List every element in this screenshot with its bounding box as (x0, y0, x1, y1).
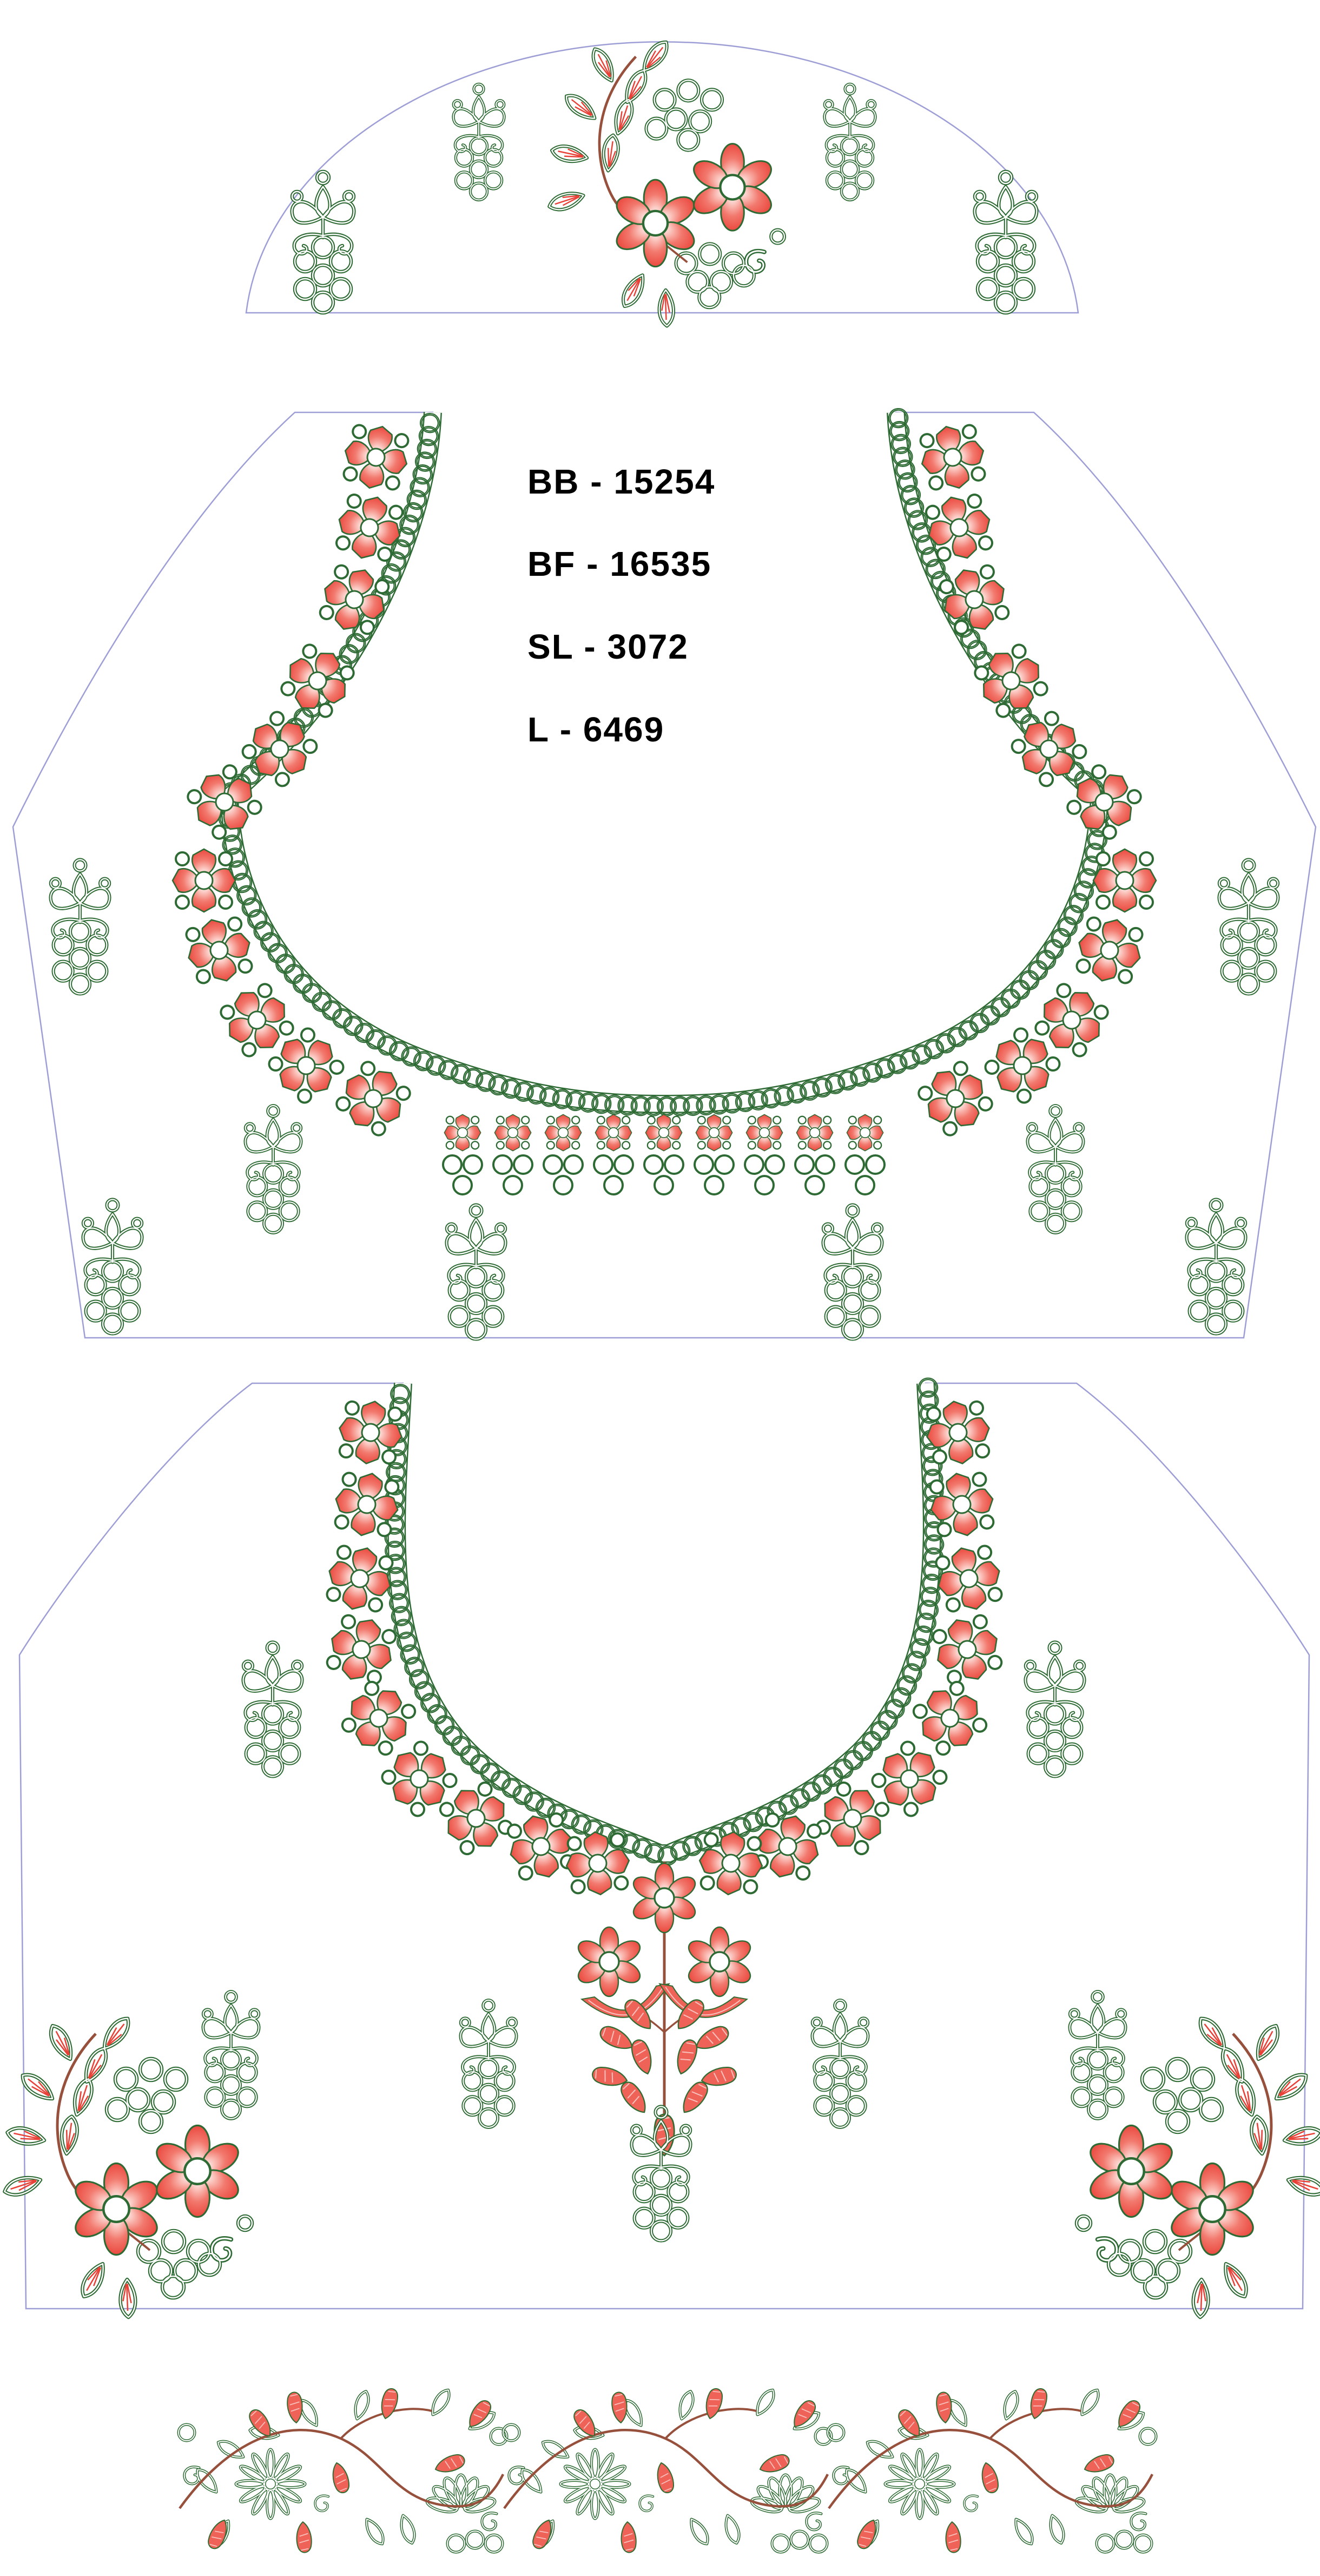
border-vine-repeat (503, 2387, 831, 2553)
stitch-count-sl: SL - 3072 (527, 627, 689, 666)
small-four-petal-flower (645, 1114, 682, 1151)
small-four-petal-flower (494, 1114, 531, 1151)
border-vine-repeat (828, 2387, 1156, 2553)
stitch-count-bf: BF - 16535 (527, 544, 711, 583)
stitch-count-labels: BB - 15254 BF - 16535 SL - 3072 L - 6469 (527, 462, 715, 749)
sleeve-piece (246, 38, 1078, 326)
four-petal-flower (335, 1397, 406, 1468)
four-petal-flower (697, 1829, 765, 1897)
small-four-petal-flower (444, 1114, 480, 1151)
small-four-petal-flower (595, 1114, 631, 1151)
four-petal-flower (1093, 849, 1156, 912)
embroidery-design-sheet: ○○○○○○○○○○○○○○○○○○○○○○○○○○○○○○○○○○○○○○○○… (0, 0, 1320, 2576)
small-four-petal-flower (796, 1114, 833, 1151)
small-four-petal-flower (847, 1114, 883, 1151)
small-four-petal-flower (545, 1114, 581, 1151)
back-bottom-flower-row (444, 1114, 883, 1151)
stitch-count-bb: BB - 15254 (527, 462, 715, 501)
four-petal-flower (564, 1829, 632, 1897)
stitch-count-l: L - 6469 (527, 710, 664, 749)
four-petal-flower (173, 849, 235, 912)
small-four-petal-flower (696, 1114, 732, 1151)
small-four-petal-flower (746, 1114, 782, 1151)
lace-border-strip (179, 2387, 1156, 2553)
border-vine-repeat (179, 2387, 507, 2553)
sleeve-outline (246, 42, 1078, 313)
four-petal-flower (922, 1397, 993, 1468)
